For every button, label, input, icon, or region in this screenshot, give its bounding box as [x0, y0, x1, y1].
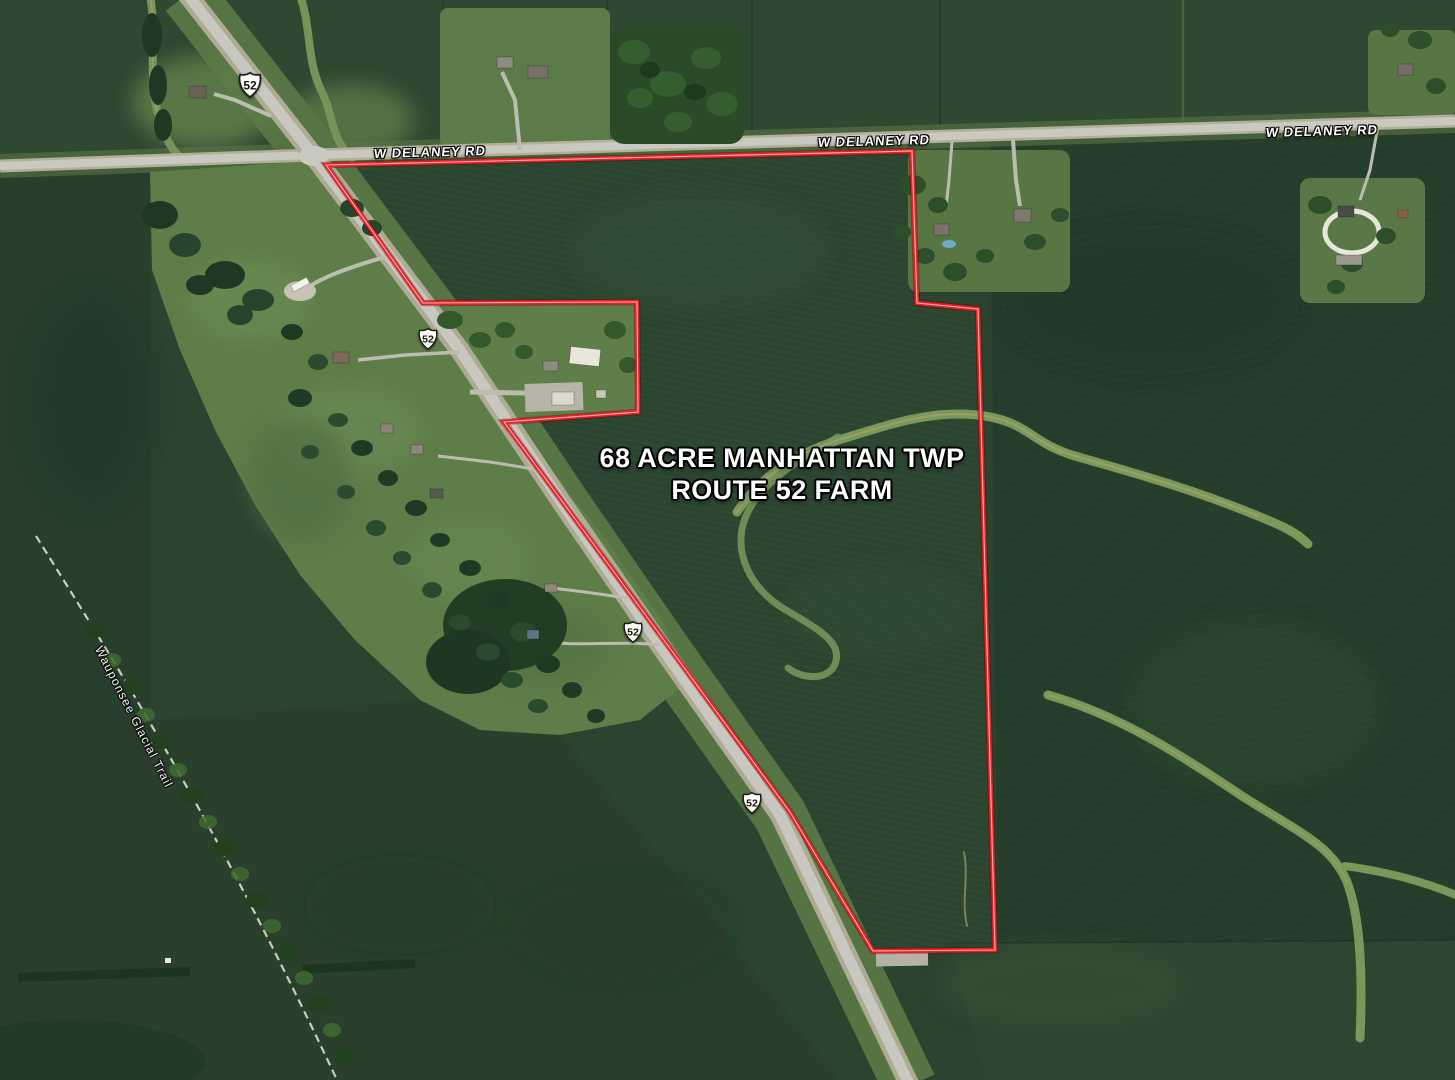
route-number: 52 [742, 793, 763, 816]
title-line-2: ROUTE 52 FARM [600, 474, 965, 506]
satellite-imagery [0, 0, 1455, 1080]
aerial-property-map: W DELANEY RD W DELANEY RD W DELANEY RD 5… [0, 0, 1455, 1080]
route-number: 52 [238, 73, 263, 100]
route-number: 52 [623, 622, 644, 645]
road-label-w-delaney-rd: W DELANEY RD [1265, 122, 1379, 140]
route-number: 52 [418, 329, 439, 352]
route-52-shield: 52 [238, 72, 263, 99]
road-label-w-delaney-rd: W DELANEY RD [373, 143, 487, 161]
property-title: 68 ACRE MANHATTAN TWP ROUTE 52 FARM [600, 442, 965, 506]
road-label-w-delaney-rd: W DELANEY RD [817, 132, 931, 150]
route-52-shield: 52 [418, 328, 439, 351]
route-52-shield: 52 [742, 792, 763, 815]
title-line-1: 68 ACRE MANHATTAN TWP [600, 442, 965, 474]
route-52-shield: 52 [623, 621, 644, 644]
